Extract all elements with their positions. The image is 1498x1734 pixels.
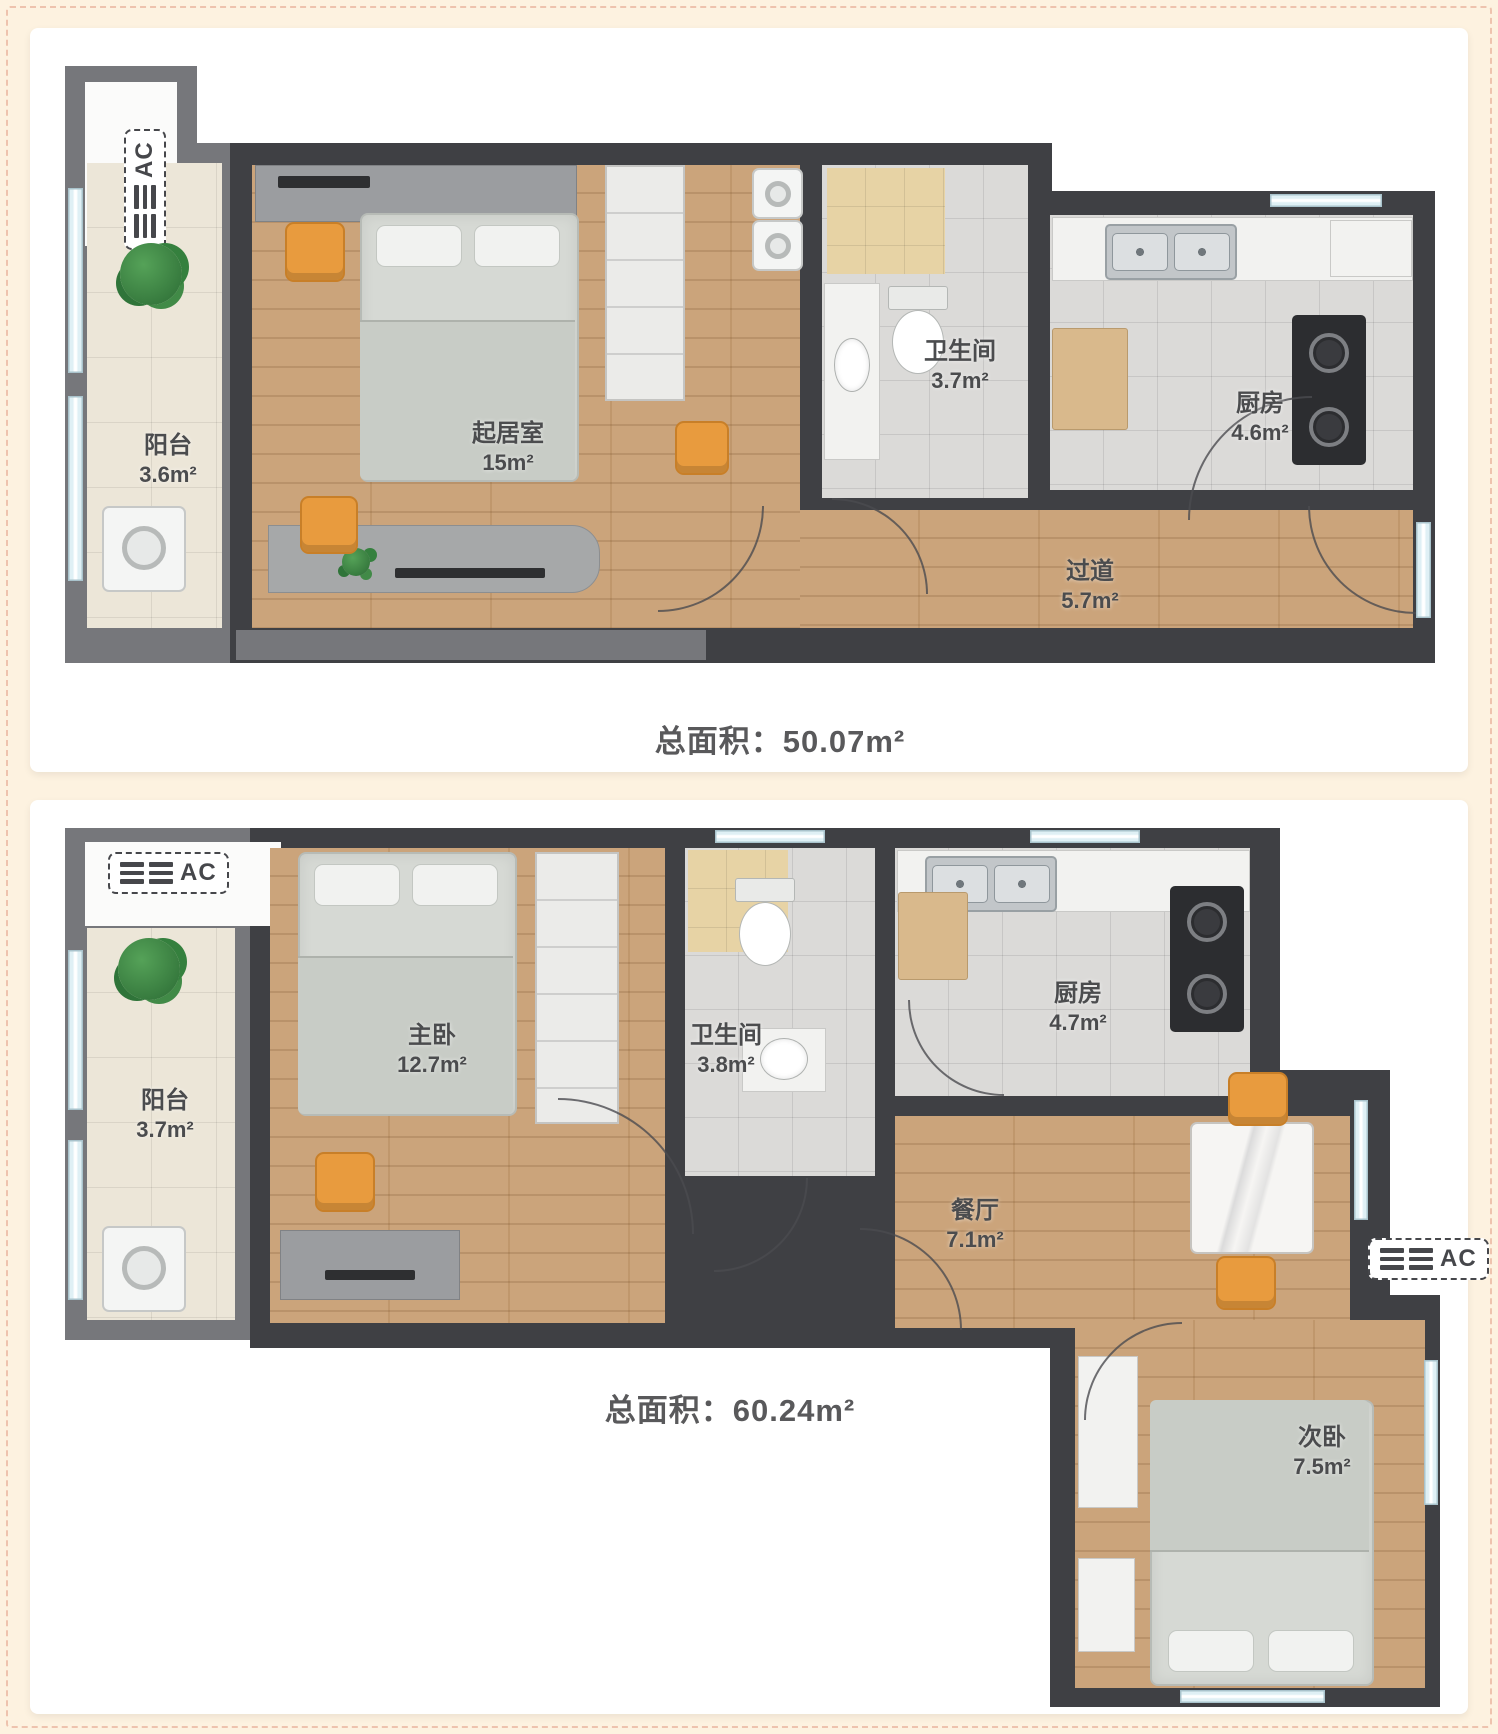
plant-icon: [120, 243, 182, 305]
cabinet: [1078, 1558, 1135, 1652]
ac-label: AC: [131, 141, 159, 178]
kitchen-cabinet-tan: [1052, 328, 1128, 430]
balcony-window: [68, 950, 83, 1110]
pillow: [314, 864, 400, 906]
entry-side-window: [1416, 522, 1431, 618]
washer-drum: [122, 526, 166, 570]
balcony-window: [68, 188, 83, 373]
ac-unit: AC: [124, 129, 166, 250]
chair: [315, 1152, 375, 1212]
stove-icon: [1170, 886, 1244, 1032]
dining-table: [1190, 1122, 1314, 1254]
room-label-dining: 餐厅7.1m²: [946, 1195, 1003, 1255]
sink-icon: [834, 338, 870, 392]
bathroom-window: [715, 830, 825, 843]
room-label-balcony: 阳台3.6m²: [139, 430, 196, 490]
room-label-bathroom: 卫生间3.8m²: [690, 1020, 762, 1080]
stool: [675, 421, 729, 475]
wardrobe: [535, 852, 619, 1124]
desk-counter: [280, 1230, 460, 1300]
chair: [1216, 1256, 1276, 1310]
floorplan-panel-1: AC: [30, 28, 1468, 772]
pillow: [474, 225, 560, 267]
room-label-living-room: 起居室15m²: [472, 418, 544, 478]
floorplan-1: AC: [30, 28, 1468, 772]
pillow: [412, 864, 498, 906]
room-label-balcony: 阳台3.7m²: [136, 1085, 193, 1145]
balcony-window: [68, 396, 83, 581]
kitchen-sink-icon: [1105, 224, 1237, 280]
chair: [285, 222, 345, 282]
room-label-master-bedroom: 主卧12.7m²: [397, 1020, 467, 1080]
bedroom-window: [1424, 1360, 1438, 1505]
plan2-total-area: 总面积：60.24m²: [605, 1385, 855, 1430]
toilet-tank: [735, 878, 795, 902]
ac-grille-icon: [134, 185, 156, 238]
ac-unit: AC: [1368, 1238, 1489, 1280]
room-label-bathroom: 卫生间3.7m²: [924, 336, 996, 396]
kitchen-window: [1030, 830, 1140, 843]
floorplan-panel-2: AC AC: [30, 800, 1468, 1714]
washer-drum: [765, 181, 791, 207]
room-label-kitchen: 厨房4.6m²: [1231, 388, 1288, 448]
floorplan-2: AC AC: [30, 800, 1468, 1714]
wall: [236, 630, 706, 660]
sink-icon: [760, 1038, 808, 1080]
plan1-total-area: 总面积：50.07m²: [655, 716, 905, 761]
room-label-hallway: 过道5.7m²: [1061, 556, 1118, 616]
dining-window: [1354, 1100, 1368, 1220]
balcony-window: [68, 1140, 83, 1300]
pillow: [1168, 1630, 1254, 1672]
pillow: [1268, 1630, 1354, 1672]
toilet-tank: [888, 286, 948, 310]
tv-icon: [278, 176, 370, 188]
washer-drum: [765, 233, 791, 259]
room-label-second-bedroom: 次卧7.5m²: [1293, 1422, 1350, 1482]
kitchen-cabinet: [1330, 220, 1412, 277]
plant-icon: [118, 938, 180, 1000]
shower-area: [827, 168, 945, 274]
toilet-icon: [739, 902, 791, 966]
room-label-kitchen: 厨房4.7m²: [1049, 978, 1106, 1038]
washing-machine-icon: [102, 1226, 186, 1312]
ac-unit: AC: [108, 852, 229, 894]
ac-label: AC: [180, 859, 217, 887]
tv-icon: [325, 1270, 415, 1280]
laundry-unit-icon: [752, 168, 803, 219]
tv-icon: [395, 568, 545, 578]
kitchen-cabinet-tan: [898, 892, 968, 980]
wardrobe: [605, 165, 685, 401]
ac-grille-icon: [1380, 1248, 1433, 1270]
chair: [300, 496, 358, 554]
chair: [1228, 1072, 1288, 1126]
laundry-unit-icon: [752, 220, 803, 271]
page-background: AC: [0, 0, 1498, 1734]
bed: [360, 213, 579, 482]
pillow: [376, 225, 462, 267]
ac-grille-icon: [120, 862, 173, 884]
ac-label: AC: [1440, 1245, 1477, 1273]
washing-machine-icon: [102, 506, 186, 592]
bedroom-window: [1180, 1690, 1325, 1703]
kitchen-window: [1270, 194, 1382, 207]
washer-drum: [122, 1246, 166, 1290]
